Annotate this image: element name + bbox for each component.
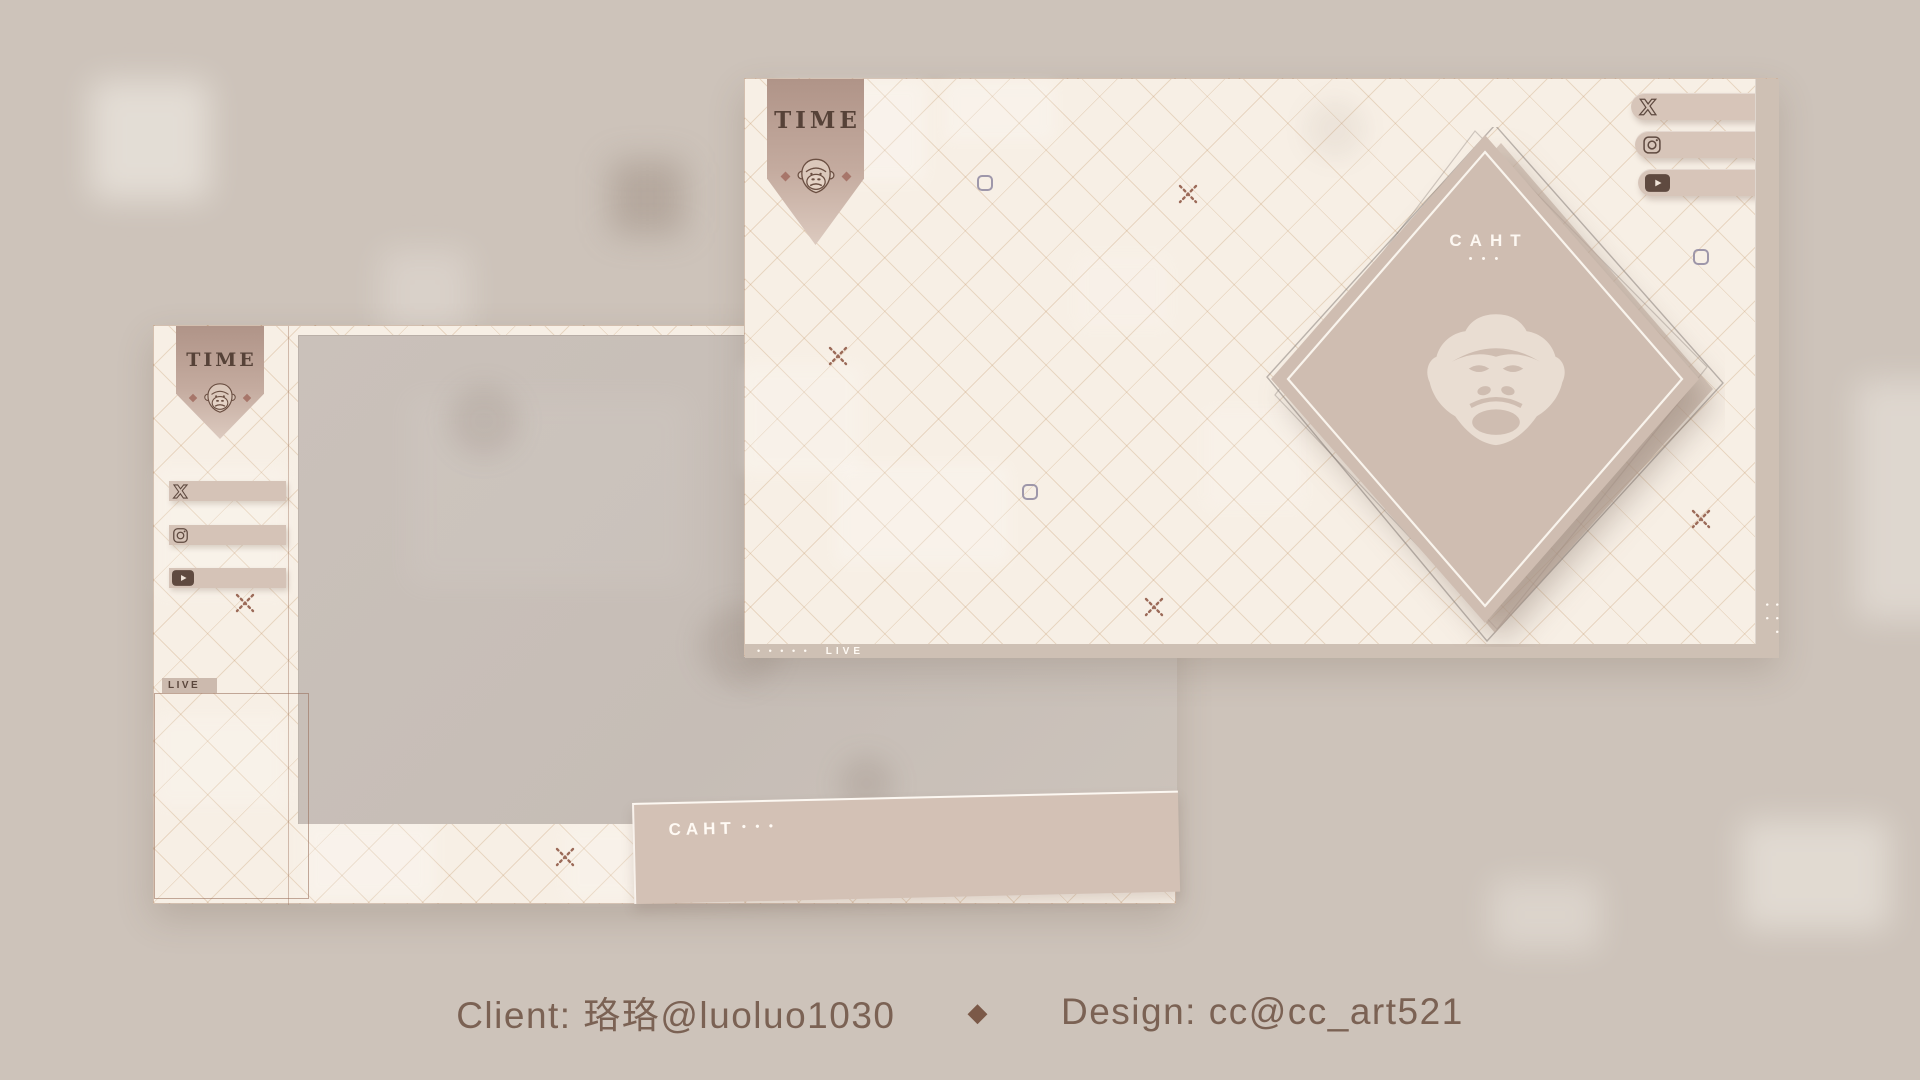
design-credit: Design: cc@cc_art521 (1061, 991, 1464, 1033)
pixel-square-decoration (977, 175, 993, 191)
social-bar-x[interactable] (169, 481, 286, 501)
chat-bar[interactable]: CAHT • • • (632, 791, 1180, 904)
chat-diamond[interactable]: CAHT • • • (1245, 127, 1725, 647)
live-bar-label: LIVE (826, 646, 864, 657)
social-bar-youtube[interactable] (169, 568, 286, 588)
backdrop-blob (610, 160, 685, 235)
strip-dots: • • • • • (1762, 603, 1782, 644)
live-tab: LIVE (162, 678, 217, 693)
diamond-title: CAHT (1245, 231, 1725, 251)
diamond-ornament (243, 394, 251, 402)
banner-title: TIME (176, 349, 264, 371)
soft-patch (304, 821, 434, 899)
x-mark-decoration (1177, 183, 1199, 205)
x-mark-decoration (234, 592, 256, 614)
capture-light-spot (409, 396, 689, 586)
soft-patch (945, 81, 1055, 141)
live-frame-box (154, 693, 309, 899)
backdrop-blob (1490, 880, 1600, 950)
time-banner: TIME (767, 79, 864, 245)
credits-footer: Client: 珞珞@luoluo1030 ◆ Design: cc@cc_ar… (0, 985, 1920, 1039)
social-bar-x[interactable] (1631, 93, 1765, 120)
soft-patch (741, 364, 861, 474)
diamond-dots: • • • (1245, 253, 1725, 265)
x-mark-decoration (1143, 596, 1165, 618)
backdrop-blob (1740, 820, 1890, 930)
x-mark-decoration (827, 345, 849, 367)
overlay-scene-large: TIME (744, 78, 1778, 657)
right-edge-strip: • • • • • (1755, 79, 1779, 644)
instagram-icon (172, 527, 189, 544)
social-bar-instagram[interactable] (169, 525, 286, 545)
diamond-separator-icon: ◆ (967, 997, 989, 1028)
pixel-square-decoration (1022, 484, 1038, 500)
x-icon (172, 483, 189, 500)
gorilla-icon (796, 156, 836, 196)
client-credit: Client: 珞珞@luoluo1030 (456, 985, 895, 1039)
banner-gorilla-row (767, 156, 864, 196)
diamond-ornament (841, 171, 851, 181)
chat-bar-dots: • • • (742, 819, 777, 834)
x-icon (1638, 97, 1658, 117)
live-bar-dots: • • • • • (757, 646, 810, 656)
banner-title: TIME (767, 107, 864, 134)
gorilla-icon (203, 381, 237, 415)
chat-bar-line: CAHT • • • (668, 818, 776, 840)
youtube-icon (172, 570, 194, 586)
soft-patch (1075, 254, 1170, 329)
chat-bar-title: CAHT (668, 819, 736, 841)
x-mark-decoration (554, 846, 576, 868)
diamond-ornament (189, 394, 197, 402)
diamond-ornament (780, 171, 790, 181)
backdrop-blob (1855, 380, 1920, 620)
backdrop-blob (90, 80, 210, 200)
soft-patch (835, 464, 1010, 564)
